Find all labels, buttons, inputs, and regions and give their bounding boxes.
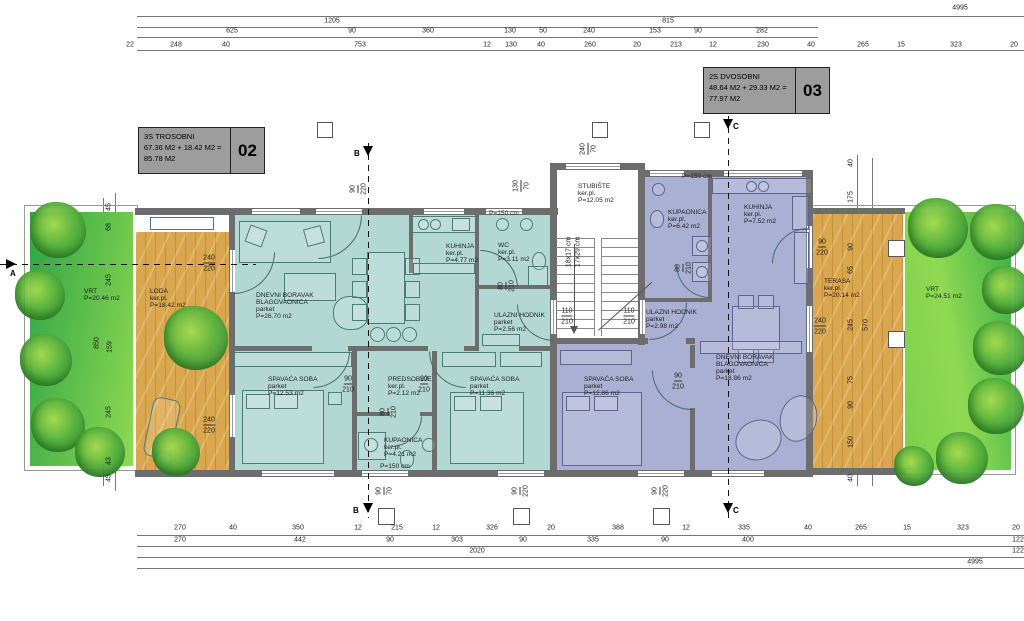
dimension-label: 40 [229, 525, 237, 532]
dim-line [137, 546, 1024, 547]
dim-line [137, 568, 1024, 569]
dimension-label: 45 [106, 474, 113, 482]
dimension-label: 220 [361, 183, 368, 195]
section-arrow-B-top [363, 146, 373, 156]
terrace-door [807, 306, 812, 352]
tree [968, 378, 1024, 434]
fridge [792, 196, 809, 230]
shower-drain [364, 438, 378, 452]
dimension-label: 240 [580, 143, 589, 155]
section-arrow-B-bottom [363, 503, 373, 513]
stool [386, 327, 401, 342]
tree [936, 432, 988, 484]
dimension-label: 210 [342, 387, 354, 394]
dimension-label: 90 [661, 537, 669, 544]
dimension-label: 150 [848, 436, 855, 448]
dimension-label: 400 [742, 537, 754, 544]
floor-plan: A B B C C 3S TROSOBNI 67.36 M2 + 18.42 M… [0, 0, 1024, 621]
dimension-label: 17x29 cm [575, 237, 582, 267]
tree [908, 198, 968, 258]
window [252, 209, 300, 214]
chair [738, 295, 754, 309]
unit-area-sum: 48.64 M2 + 29.33 M2 = [709, 83, 792, 94]
dimension-label: 1205 [324, 18, 340, 25]
unit-type: 3S TROSOBNI [144, 132, 227, 143]
washbasin [652, 183, 665, 196]
section-line-C [728, 116, 729, 518]
room-label: P=24.51 m2 [926, 294, 962, 301]
dining-table [367, 252, 405, 324]
dimension-label: 130 [513, 180, 522, 192]
vent-symbol [653, 508, 670, 525]
dimension-label: 215 [391, 525, 403, 532]
vent-symbol [592, 122, 608, 138]
dimension-label: 220 [203, 428, 215, 435]
dimension-label: 90 [848, 243, 855, 251]
dimension-label: 65 [848, 266, 855, 274]
wall [135, 470, 812, 477]
vent-symbol [317, 122, 333, 138]
unit-area-total: 85.78 M2 [144, 154, 227, 165]
dimension-label: 40 [537, 42, 545, 49]
dimension-label: 12 [354, 525, 362, 532]
vent-symbol [513, 508, 530, 525]
room-label: P=12.86 m2 [584, 391, 620, 398]
chair [352, 281, 367, 298]
dimension-label: 230 [757, 42, 769, 49]
tree [15, 270, 65, 320]
nightstand [328, 392, 342, 405]
dimension-label: 260 [584, 42, 596, 49]
kitchen-island [413, 263, 475, 274]
room-label: P=12.53 m2 [268, 391, 304, 398]
tree [970, 204, 1024, 260]
dimension-label: 326 [486, 525, 498, 532]
dimension-label: 20 [1012, 525, 1020, 532]
unit-area-sum: 67.36 M2 + 18.42 M2 = [144, 143, 227, 154]
dimension-label: 18x17 cm [566, 237, 573, 267]
vent-symbol [694, 122, 710, 138]
dimension-label: 40 [848, 474, 855, 482]
dimension-label: 12 [483, 42, 491, 49]
room-label: P=150 cm [380, 464, 410, 471]
dimension-label: 753 [354, 42, 366, 49]
room-label: P=150 cm [682, 174, 712, 181]
dim-line [137, 557, 1024, 558]
dimension-label: 335 [738, 525, 750, 532]
room-label: P=3.11 m2 [498, 257, 530, 264]
dimension-label: 335 [587, 537, 599, 544]
dimension-label: 122 [1012, 548, 1024, 555]
section-label-B-bottom: B [353, 506, 359, 515]
room-label: P=2.56 m2 [494, 327, 526, 334]
dimension-label: 40 [848, 159, 855, 167]
dim-line [137, 37, 818, 38]
wardrobe [560, 350, 632, 365]
dimension-label: 80 [675, 264, 684, 272]
tree [152, 428, 200, 476]
dimension-label: 90 [674, 373, 682, 382]
section-label-B-top: B [354, 149, 360, 158]
window [424, 209, 464, 214]
sink [746, 181, 757, 192]
dimension-label: 90 [848, 401, 855, 409]
dimension-label: 12 [682, 525, 690, 532]
dimension-label: 850 [94, 337, 101, 349]
window [650, 171, 684, 176]
dimension-label: 210 [686, 262, 693, 274]
pillow [246, 394, 270, 409]
stool [402, 327, 417, 342]
hall-cabinet [482, 334, 520, 346]
dimension-label: 12 [432, 525, 440, 532]
sink [430, 219, 441, 230]
dimension-label: 4995 [952, 5, 968, 12]
sink [418, 219, 429, 230]
dimension-label: 213 [670, 42, 682, 49]
dimension-label: 220 [814, 329, 826, 336]
stool [370, 327, 385, 342]
washbasin [520, 218, 533, 231]
window [724, 171, 802, 176]
dimension-label: 40 [222, 42, 230, 49]
dimension-label: 90 [694, 28, 702, 35]
pillow [480, 396, 502, 411]
dimension-label: 45 [106, 203, 113, 211]
dimension-label: 220 [663, 485, 670, 497]
stair-rail [594, 238, 602, 336]
dimension-label: 240 [203, 255, 215, 264]
wall [812, 468, 905, 475]
room-label: P=12.05 m2 [578, 198, 614, 205]
dimension-label: 70 [591, 145, 598, 153]
dimension-label: 68 [106, 223, 113, 231]
pillow [566, 396, 590, 411]
dimension-label: 175 [848, 191, 855, 203]
window [638, 471, 684, 476]
dimension-label: 210 [623, 319, 635, 326]
room-label: P=7.52 m2 [744, 219, 776, 226]
dimension-label: 90 [376, 487, 385, 495]
dimension-label: 90 [818, 239, 826, 248]
dimension-label: 303 [451, 537, 463, 544]
dimension-label: 265 [855, 525, 867, 532]
wardrobe [500, 352, 542, 367]
dimension-label: 110 [623, 308, 634, 317]
dimension-label: 20 [547, 525, 555, 532]
dimension-label: 265 [857, 42, 869, 49]
door-opening [316, 209, 362, 214]
dim-line [137, 50, 1024, 51]
dimension-label: 40 [804, 525, 812, 532]
planter [150, 217, 214, 230]
wall [812, 208, 905, 214]
dimension-label: 80 [498, 282, 507, 290]
stair-arrow [570, 326, 578, 334]
sideboard [700, 341, 802, 354]
dimension-label: 248 [170, 42, 182, 49]
dimension-label: 245 [106, 406, 113, 418]
tree [20, 334, 72, 386]
dimension-label: 90 [386, 537, 394, 544]
dimension-label: 220 [203, 266, 215, 273]
dimension-label: 122 [1012, 537, 1024, 544]
wall [550, 163, 557, 215]
dimension-label: 360 [422, 28, 434, 35]
unit-area-total: 77.97 M2 [709, 94, 792, 105]
dimension-label: 70 [387, 487, 394, 495]
dimension-label: 90 [350, 185, 359, 193]
chair [405, 281, 420, 298]
tree [982, 266, 1024, 314]
stove [452, 218, 470, 231]
room-label: P=11.36 m2 [470, 391, 505, 398]
dimension-label: 130 [505, 42, 517, 49]
toilet [650, 210, 664, 228]
dimension-label: 442 [294, 537, 306, 544]
pillow [454, 396, 476, 411]
dimension-label: 50 [539, 28, 547, 35]
dimension-label: 323 [957, 525, 969, 532]
room-label: P=2.12 m2 [388, 391, 420, 398]
room-label: P=26.70 m2 [256, 314, 292, 321]
vent-symbol [888, 240, 905, 257]
dimension-label: 20 [1010, 42, 1018, 49]
unit-title-block-02: 3S TROSOBNI 67.36 M2 + 18.42 M2 = 85.78 … [138, 127, 265, 174]
tree [894, 446, 934, 486]
dimension-label: 270 [174, 537, 186, 544]
sink [758, 181, 769, 192]
section-line-B [368, 143, 369, 518]
window [566, 164, 620, 169]
unit-title-text: 2S DVOSOBNI 48.64 M2 + 29.33 M2 = 77.97 … [704, 68, 795, 113]
dimension-label: 240 [583, 28, 595, 35]
wall [475, 285, 479, 348]
dimension-label: 625 [226, 28, 238, 35]
dimension-label: 80 [380, 408, 389, 416]
dimension-label: 90 [344, 376, 352, 385]
shower [528, 266, 548, 286]
dimension-label: 12 [709, 42, 717, 49]
window [498, 471, 544, 476]
dimension-label: 130 [504, 28, 516, 35]
dimension-label: 90 [652, 487, 661, 495]
room-label: P=18.86 m2 [716, 376, 752, 383]
tree [164, 306, 228, 370]
dimension-label: 20 [633, 42, 641, 49]
dimension-label: 240 [814, 318, 826, 327]
dimension-label: 153 [649, 28, 661, 35]
dimension-label: 15 [897, 42, 905, 49]
section-label-A: A [10, 269, 16, 278]
dimension-label: 159 [107, 341, 114, 353]
room-label: P=2.98 m2 [646, 324, 678, 331]
section-label-C-top: C [733, 122, 739, 131]
vent-symbol [378, 508, 395, 525]
room-label: P=4.21 m2 [384, 452, 416, 459]
stair-window [640, 300, 645, 334]
dimension-label: 240 [203, 417, 215, 426]
dimension-label: 210 [391, 406, 398, 418]
washbasin [496, 218, 509, 231]
dimension-label: 90 [348, 28, 356, 35]
washbasin [422, 438, 436, 452]
unit-number: 02 [230, 128, 264, 173]
tree [30, 202, 86, 258]
section-arrow-C-bottom [723, 503, 733, 513]
room-label: P=20.14 m2 [824, 293, 860, 300]
dimension-label: 15 [903, 525, 911, 532]
dimension-label: 4995 [967, 559, 983, 566]
chair [758, 295, 774, 309]
dimension-label: 43 [106, 457, 113, 465]
tree [75, 427, 125, 477]
dimension-label: 323 [950, 42, 962, 49]
room-label: P=18.42 m2 [150, 303, 186, 310]
dimension-label: 220 [816, 250, 828, 257]
chair [352, 258, 367, 275]
dimension-label: 90 [512, 487, 521, 495]
unit-title-text: 3S TROSOBNI 67.36 M2 + 18.42 M2 = 85.78 … [139, 128, 230, 173]
vent-symbol [888, 331, 905, 348]
dimension-label: 210 [561, 319, 573, 326]
unit-number: 03 [795, 68, 829, 113]
dimension-label: 220 [523, 485, 530, 497]
section-label-C-bottom: C [733, 506, 739, 515]
room-label: P=4.77 m2 [446, 258, 478, 265]
dimension-label: 70 [524, 182, 531, 190]
dimension-label: 815 [662, 18, 674, 25]
room-label: P=150 cm [489, 211, 519, 218]
room-label: P=20.46 m2 [84, 296, 120, 303]
dim-line [137, 27, 818, 28]
dimension-label: 388 [612, 525, 624, 532]
dimension-label: 350 [292, 525, 304, 532]
unit-type: 2S DVOSOBNI [709, 72, 792, 83]
unit-title-block-03: 2S DVOSOBNI 48.64 M2 + 29.33 M2 = 77.97 … [703, 67, 830, 114]
dim-line [137, 16, 1024, 17]
dimension-label: 245 [106, 274, 113, 286]
chair [352, 304, 367, 321]
pillow [594, 396, 618, 411]
dimension-label: 75 [848, 376, 855, 384]
window [262, 471, 334, 476]
door-opening [479, 346, 519, 351]
window [712, 471, 764, 476]
dimension-label: 22 [126, 42, 134, 49]
balcony-door [230, 395, 235, 437]
dimension-label: 110 [561, 308, 572, 317]
dimension-label: 40 [807, 42, 815, 49]
section-arrow-C-top [723, 119, 733, 129]
dimension-label: 2020 [469, 548, 485, 555]
section-line-A [0, 264, 256, 265]
section-arrow-A [6, 259, 16, 269]
dimension-label: 210 [509, 280, 516, 292]
dimension-label: 210 [672, 384, 684, 391]
chair [405, 304, 420, 321]
dimension-label: 270 [174, 525, 186, 532]
dimension-label: 282 [756, 28, 768, 35]
dimension-label: 90 [519, 537, 527, 544]
room-label: P=6.42 m2 [668, 224, 700, 231]
washing-machine-door [696, 240, 708, 252]
dim-line [137, 535, 1024, 536]
dimension-label: 570 [863, 319, 870, 331]
tree [973, 321, 1024, 375]
dimension-label: 245 [848, 319, 855, 331]
